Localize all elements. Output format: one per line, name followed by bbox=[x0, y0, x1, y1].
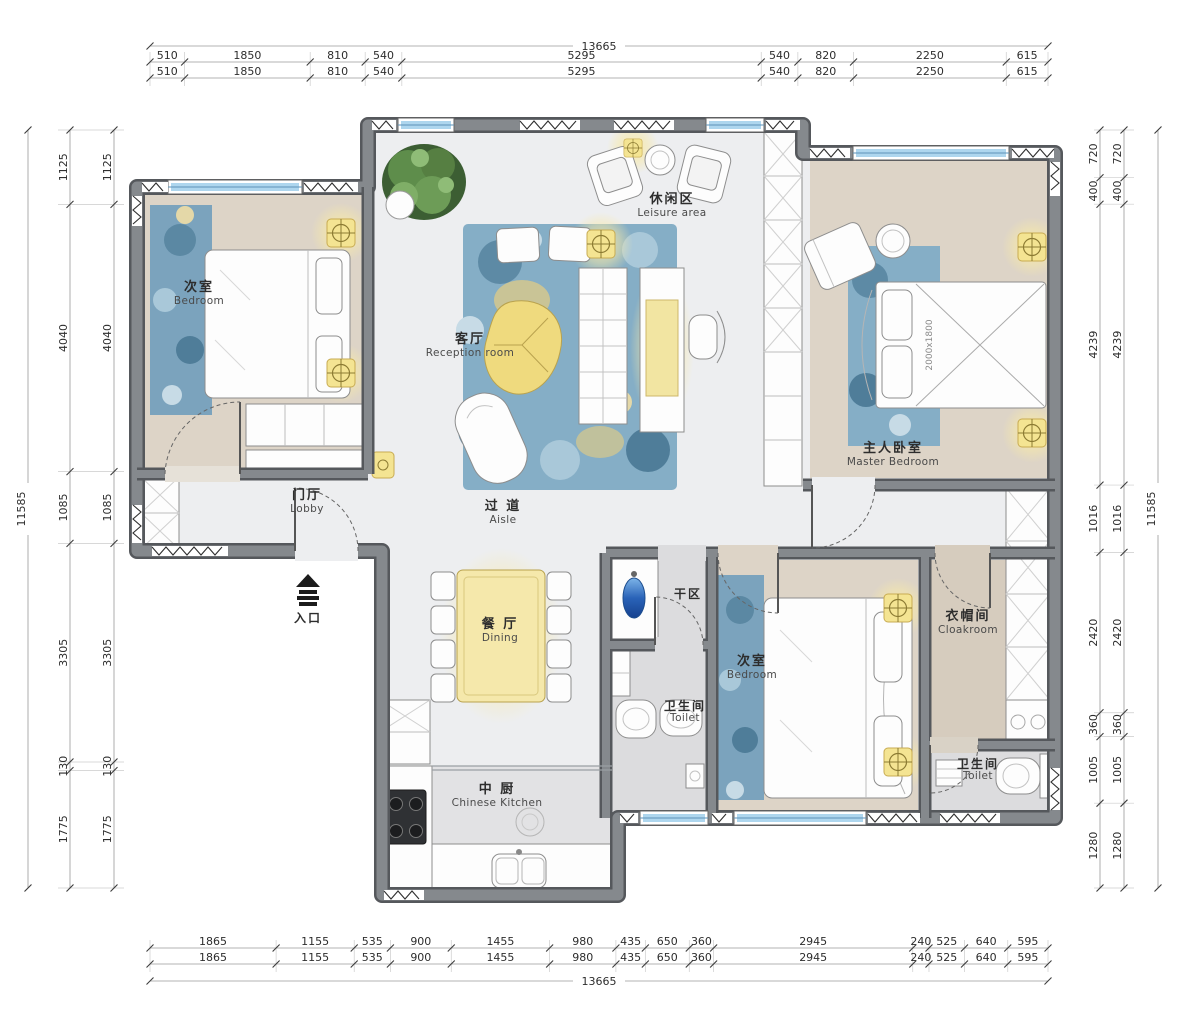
dim-label: 525 bbox=[936, 935, 957, 948]
dim-label: 360 bbox=[691, 951, 712, 964]
dim-label: 535 bbox=[362, 951, 383, 964]
dim-label: 2420 bbox=[1111, 619, 1124, 647]
dim-label: 2250 bbox=[916, 49, 944, 62]
dim-label: 240 bbox=[910, 935, 931, 948]
dim-label: 13665 bbox=[582, 975, 617, 988]
dim-label: 615 bbox=[1017, 65, 1038, 78]
dim-label: 435 bbox=[620, 935, 641, 948]
toilet1-fixture-2 bbox=[660, 700, 702, 736]
dim-label: 360 bbox=[1087, 714, 1100, 735]
master-bed-size-label: 2000x1800 bbox=[925, 319, 935, 370]
dim-label: 1850 bbox=[233, 49, 261, 62]
wardrobe-column bbox=[764, 132, 802, 486]
dim-label: 900 bbox=[410, 951, 431, 964]
dim-label: 1125 bbox=[101, 153, 114, 181]
cloakroom-cabinet bbox=[1006, 488, 1050, 744]
dim-label: 535 bbox=[362, 935, 383, 948]
dim-label: 820 bbox=[815, 49, 836, 62]
window-living-1 bbox=[398, 118, 454, 132]
dim-label: 810 bbox=[327, 49, 348, 62]
dim-label: 130 bbox=[57, 756, 70, 777]
dim-label: 595 bbox=[1017, 951, 1038, 964]
dim-label: 720 bbox=[1087, 143, 1100, 164]
dim-label: 1850 bbox=[233, 65, 261, 78]
armchair-2 bbox=[548, 226, 592, 262]
dim-label: 4040 bbox=[101, 324, 114, 352]
dim-label: 1775 bbox=[57, 815, 70, 843]
dim-label: 4040 bbox=[57, 324, 70, 352]
dim-label: 1085 bbox=[101, 494, 114, 522]
dim-label: 2420 bbox=[1087, 619, 1100, 647]
window-bedroom1 bbox=[168, 180, 302, 194]
dim-label: 240 bbox=[910, 951, 931, 964]
dim-label: 1455 bbox=[486, 935, 514, 948]
dim-label: 4239 bbox=[1111, 331, 1124, 359]
window-master bbox=[853, 146, 1009, 160]
dim-label: 720 bbox=[1111, 143, 1124, 164]
dim-label: 5295 bbox=[568, 49, 596, 62]
dim-label: 900 bbox=[410, 935, 431, 948]
bath1-cabinet bbox=[686, 764, 704, 788]
dim-label: 820 bbox=[815, 65, 836, 78]
dim-label: 11585 bbox=[1145, 492, 1158, 527]
dim-label: 650 bbox=[657, 951, 678, 964]
window-bedroom2 bbox=[734, 811, 866, 825]
toilet1-fixture-1 bbox=[616, 700, 656, 738]
toilet2-sink bbox=[936, 760, 962, 786]
dim-label: 1865 bbox=[199, 935, 227, 948]
side-table bbox=[386, 191, 414, 219]
dim-label: 615 bbox=[1017, 49, 1038, 62]
wall-lamp bbox=[372, 452, 394, 478]
dim-label: 360 bbox=[691, 935, 712, 948]
closet-bedroom1 bbox=[246, 404, 362, 446]
dim-label: 1016 bbox=[1087, 505, 1100, 533]
dim-label: 1005 bbox=[1111, 756, 1124, 784]
dim-label: 540 bbox=[373, 65, 394, 78]
dim-label: 400 bbox=[1087, 180, 1100, 201]
dim-label: 810 bbox=[327, 65, 348, 78]
dim-label: 2250 bbox=[916, 65, 944, 78]
dim-label: 1280 bbox=[1111, 832, 1124, 860]
floor-plan-page: 2000x1800 136655101850810540529554082022… bbox=[0, 0, 1200, 1022]
entrance-icon bbox=[296, 574, 320, 606]
dim-label: 540 bbox=[769, 49, 790, 62]
dim-label: 1280 bbox=[1087, 832, 1100, 860]
window-living-2 bbox=[706, 118, 764, 132]
dim-label: 540 bbox=[373, 49, 394, 62]
dim-label: 650 bbox=[657, 935, 678, 948]
dim-label: 3305 bbox=[101, 639, 114, 667]
dim-label: 1155 bbox=[301, 951, 329, 964]
dim-label: 640 bbox=[976, 951, 997, 964]
dim-label: 1085 bbox=[57, 494, 70, 522]
window-bath1 bbox=[640, 811, 708, 825]
dim-label: 1155 bbox=[301, 935, 329, 948]
dim-label: 595 bbox=[1017, 935, 1038, 948]
dry-area-sink bbox=[623, 578, 645, 618]
dim-label: 1005 bbox=[1087, 756, 1100, 784]
dim-label: 130 bbox=[101, 756, 114, 777]
armchair-1 bbox=[496, 227, 540, 263]
dim-label: 1016 bbox=[1111, 505, 1124, 533]
dim-label: 510 bbox=[157, 65, 178, 78]
master-round-table bbox=[876, 224, 910, 258]
dim-label: 3305 bbox=[57, 639, 70, 667]
dim-label: 4239 bbox=[1087, 331, 1100, 359]
bed-master bbox=[862, 282, 1046, 408]
dim-label: 11585 bbox=[15, 492, 28, 527]
dim-label: 5295 bbox=[568, 65, 596, 78]
dim-label: 2945 bbox=[799, 935, 827, 948]
dim-label: 1865 bbox=[199, 951, 227, 964]
dim-label: 980 bbox=[572, 935, 593, 948]
dim-label: 540 bbox=[769, 65, 790, 78]
dim-label: 400 bbox=[1111, 180, 1124, 201]
dim-label: 1775 bbox=[101, 815, 114, 843]
leisure-table bbox=[645, 145, 675, 175]
dim-label: 980 bbox=[572, 951, 593, 964]
dim-label: 525 bbox=[936, 951, 957, 964]
dim-label: 1125 bbox=[57, 153, 70, 181]
dim-label: 1455 bbox=[486, 951, 514, 964]
dim-label: 360 bbox=[1111, 714, 1124, 735]
dim-label: 2945 bbox=[799, 951, 827, 964]
dim-label: 510 bbox=[157, 49, 178, 62]
floor-plan-canvas: 2000x1800 136655101850810540529554082022… bbox=[0, 0, 1200, 1022]
dim-label: 435 bbox=[620, 951, 641, 964]
dim-label: 640 bbox=[976, 935, 997, 948]
